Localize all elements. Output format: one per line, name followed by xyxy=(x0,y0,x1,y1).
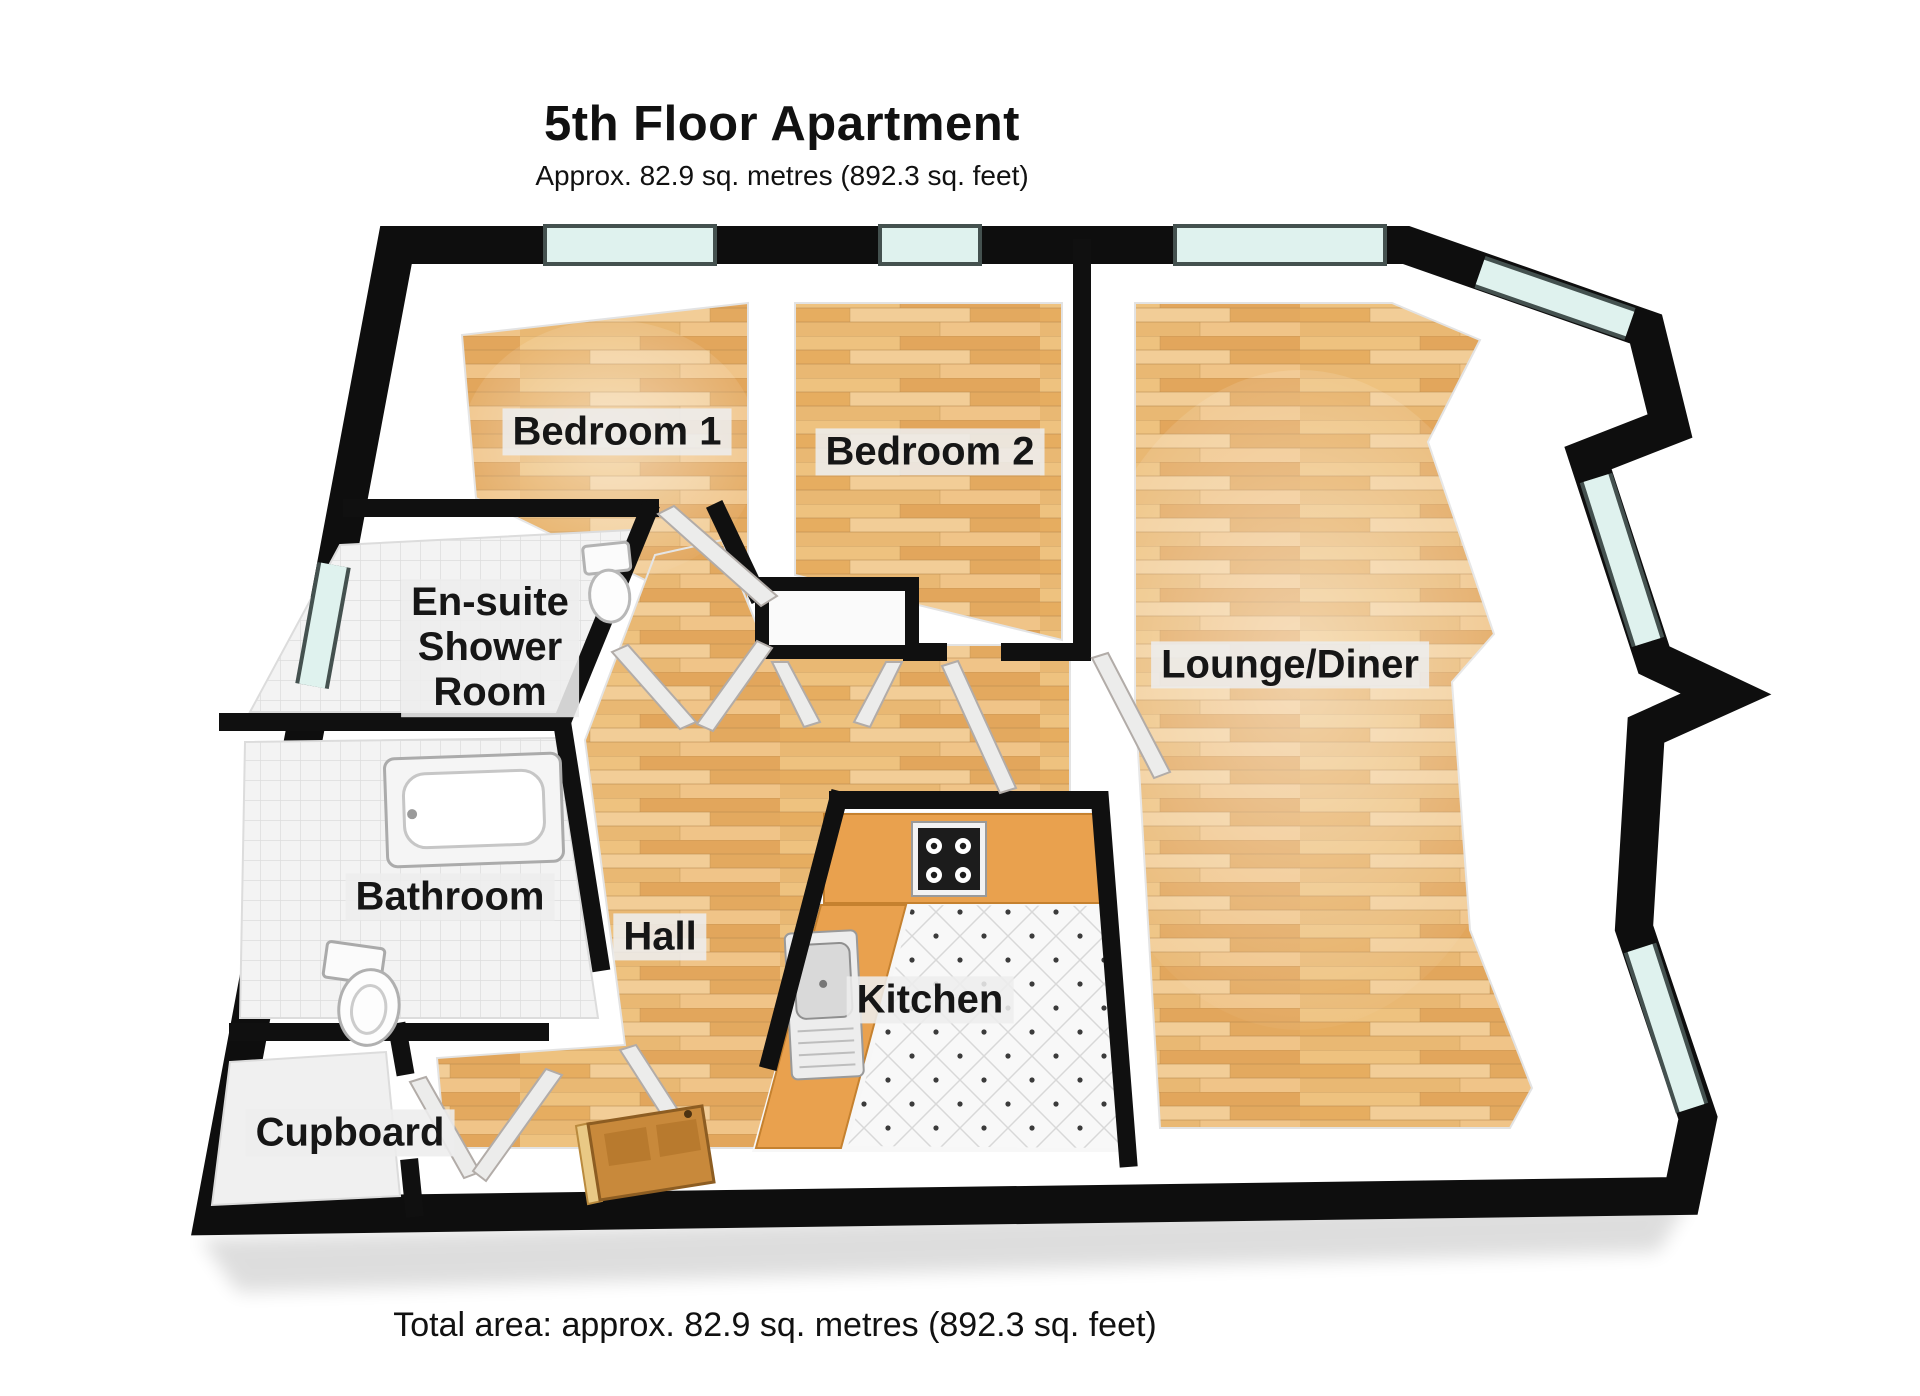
hob-icon xyxy=(912,822,986,896)
hall-closet xyxy=(762,584,912,652)
bathtub xyxy=(384,753,564,867)
room-label-bathroom: Bathroom xyxy=(346,873,555,920)
room-label-cupboard: Cupboard xyxy=(246,1109,455,1156)
floorplan-drawing xyxy=(0,0,1920,1396)
lounge-floor-sheen xyxy=(1070,370,1530,1030)
total-area-text: Total area: approx. 82.9 sq. metres (892… xyxy=(0,1306,1550,1345)
room-label-bedroom-1: Bedroom 1 xyxy=(503,408,732,455)
floorplan-page: 5th Floor Apartment Approx. 82.9 sq. met… xyxy=(0,0,1920,1396)
ensuite-window xyxy=(312,565,334,686)
room-label-lounge-diner: Lounge/Diner xyxy=(1151,641,1429,688)
room-label-hall: Hall xyxy=(613,913,706,960)
bedroom2-window xyxy=(880,226,980,264)
lounge-top-window xyxy=(1175,226,1385,264)
bedroom1-window xyxy=(545,226,715,264)
room-label-en-suite-shower-room: En-suite Shower Room xyxy=(401,579,579,717)
room-label-kitchen: Kitchen xyxy=(847,976,1014,1023)
room-label-bedroom-2: Bedroom 2 xyxy=(816,428,1045,475)
